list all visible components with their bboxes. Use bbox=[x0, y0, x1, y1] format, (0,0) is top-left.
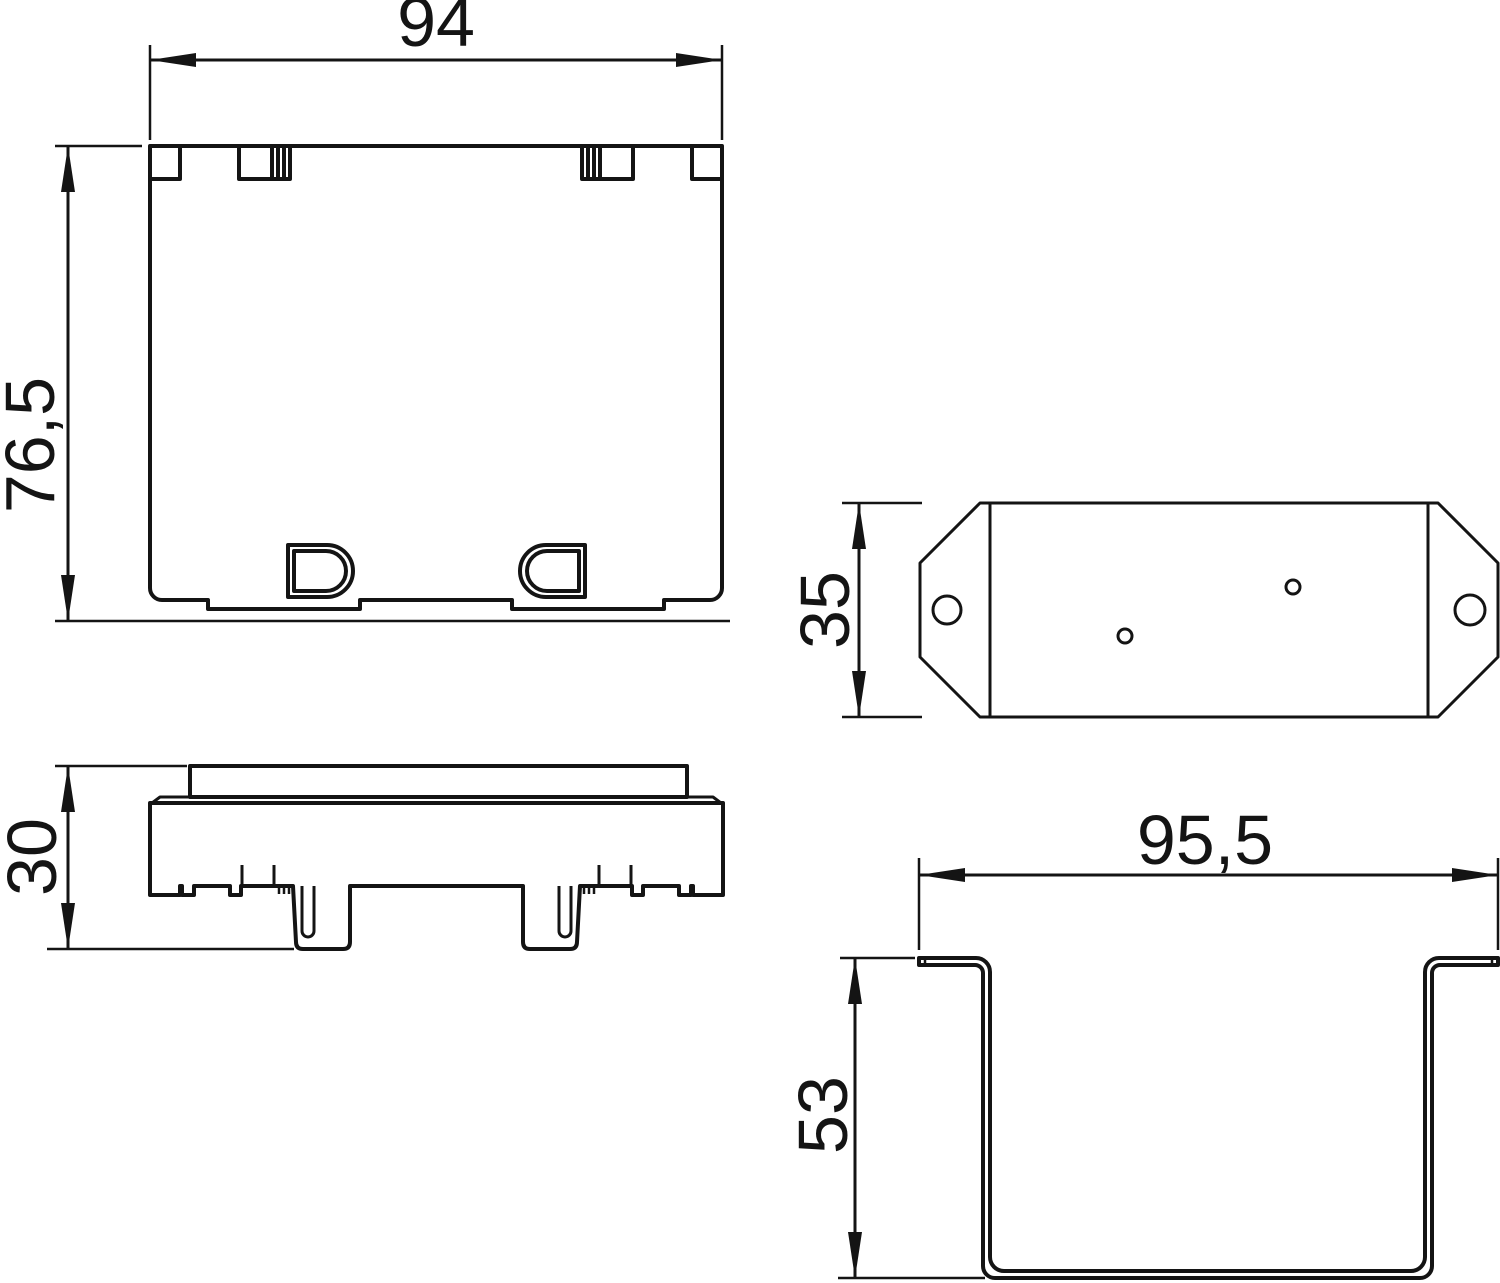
hatch-marks bbox=[279, 887, 594, 894]
snap-ticks bbox=[242, 865, 631, 886]
pilot-hole-left bbox=[1118, 629, 1132, 643]
dim-label-front-width: 94 bbox=[397, 0, 475, 61]
dim-label-plate-height: 35 bbox=[786, 571, 864, 649]
side-view: 30 bbox=[0, 766, 723, 949]
arrowhead-left bbox=[150, 53, 196, 67]
dim-label-front-height: 76,5 bbox=[0, 377, 69, 513]
channel-view: 95,5 53 bbox=[784, 801, 1498, 1278]
arrowhead-left bbox=[919, 868, 965, 882]
arrowhead-right bbox=[676, 53, 722, 67]
dimension-plate-height: 35 bbox=[786, 503, 922, 717]
side-body-outline bbox=[150, 803, 723, 949]
dim-label-channel-depth: 53 bbox=[784, 1076, 862, 1154]
pilot-hole-right bbox=[1286, 580, 1300, 594]
d-slot-right-inner bbox=[527, 551, 579, 591]
top-latch-tab-right-hatched bbox=[582, 146, 633, 179]
d-slot-left-inner bbox=[294, 551, 346, 591]
arrowhead-bottom bbox=[61, 903, 75, 949]
dim-label-channel-width: 95,5 bbox=[1137, 801, 1273, 879]
top-latch-tab-left bbox=[150, 146, 180, 179]
technical-drawing-page: 94 76,5 30 bbox=[0, 0, 1500, 1283]
arrowhead-top bbox=[852, 503, 866, 549]
plate-view: 35 bbox=[786, 503, 1498, 717]
arrowhead-bottom bbox=[61, 575, 75, 621]
dimension-front-width: 94 bbox=[150, 0, 722, 140]
foot-slot-right bbox=[559, 886, 571, 937]
extension-line bbox=[47, 766, 294, 949]
arrowhead-top bbox=[61, 146, 75, 192]
arrowhead-bottom bbox=[852, 671, 866, 717]
channel-outline bbox=[919, 958, 1498, 1278]
dimension-side-height: 30 bbox=[0, 766, 294, 949]
dim-label-side-height: 30 bbox=[0, 818, 71, 896]
arrowhead-top bbox=[61, 766, 75, 812]
mounting-hole-right bbox=[1455, 595, 1485, 625]
technical-drawing: 94 76,5 30 bbox=[0, 0, 1500, 1283]
foot-slot-left bbox=[302, 886, 314, 937]
arrowhead-top bbox=[848, 958, 862, 1004]
dimension-channel-depth: 53 bbox=[784, 958, 985, 1278]
side-top-plate bbox=[190, 766, 687, 797]
extension-line bbox=[55, 146, 730, 621]
mounting-hole-left bbox=[933, 596, 961, 624]
top-latch-tab-left-hatched bbox=[239, 146, 290, 179]
front-view: 94 76,5 bbox=[0, 0, 730, 621]
arrowhead-bottom bbox=[848, 1232, 862, 1278]
arrowhead-right bbox=[1452, 868, 1498, 882]
top-latch-tab-right bbox=[692, 146, 722, 179]
flange-hem-ticks bbox=[925, 958, 1492, 965]
front-view-outline bbox=[150, 146, 722, 609]
dimension-channel-width: 95,5 bbox=[919, 801, 1498, 950]
dimension-front-height: 76,5 bbox=[0, 146, 730, 621]
plate-tab-left bbox=[920, 503, 990, 717]
plate-body bbox=[990, 503, 1428, 717]
plate-tab-right bbox=[1428, 503, 1498, 717]
